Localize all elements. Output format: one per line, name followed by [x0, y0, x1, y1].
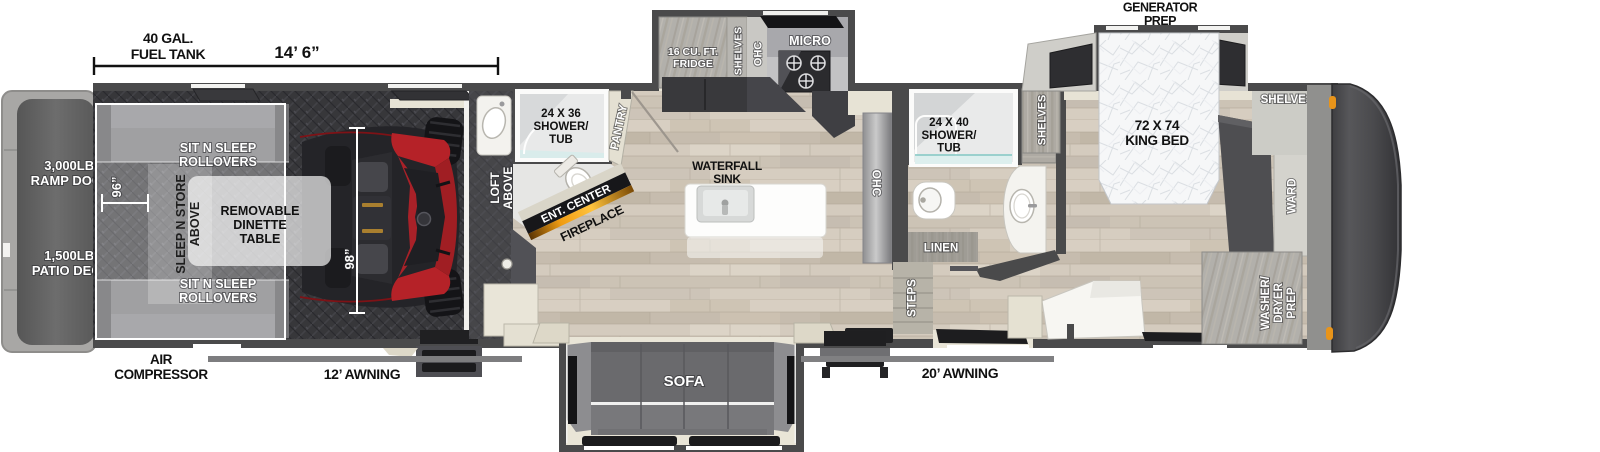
svg-text:DRYER: DRYER	[1273, 282, 1285, 323]
svg-text:40 GAL.: 40 GAL.	[143, 30, 193, 46]
svg-text:ROLLOVERS: ROLLOVERS	[179, 291, 257, 305]
svg-text:96”: 96”	[109, 177, 124, 198]
svg-text:TABLE: TABLE	[240, 232, 281, 246]
svg-text:FUEL TANK: FUEL TANK	[131, 46, 206, 62]
svg-text:1,500LB.: 1,500LB.	[44, 248, 97, 263]
svg-text:DINETTE: DINETTE	[233, 218, 286, 232]
svg-text:24 X 40: 24 X 40	[929, 117, 969, 129]
svg-text:WASHER/: WASHER/	[1260, 275, 1272, 329]
svg-text:16 CU. FT.: 16 CU. FT.	[668, 46, 718, 58]
svg-text:FRIDGE: FRIDGE	[673, 58, 713, 70]
svg-text:ABOVE: ABOVE	[188, 202, 202, 246]
svg-text:SIT N SLEEP: SIT N SLEEP	[180, 141, 256, 155]
svg-text:AIR: AIR	[150, 352, 173, 367]
svg-text:SINK: SINK	[713, 172, 741, 186]
svg-text:SHOWER/: SHOWER/	[922, 130, 978, 142]
svg-text:72 X 74: 72 X 74	[1135, 118, 1180, 133]
svg-text:SHELVES: SHELVES	[733, 27, 745, 75]
svg-text:LOFT: LOFT	[488, 172, 502, 204]
svg-text:SHELVES: SHELVES	[1261, 94, 1314, 106]
svg-text:SOFA: SOFA	[664, 373, 705, 390]
svg-text:REMOVABLE: REMOVABLE	[221, 204, 300, 218]
svg-text:OHC: OHC	[753, 42, 765, 67]
svg-text:SHOWER/: SHOWER/	[534, 121, 590, 133]
svg-text:98”: 98”	[342, 249, 357, 270]
svg-text:WARD: WARD	[1287, 178, 1299, 213]
svg-text:PREP: PREP	[1286, 287, 1298, 319]
svg-text:LINEN: LINEN	[924, 243, 959, 255]
svg-text:KING BED: KING BED	[1125, 133, 1189, 148]
svg-text:ROLLOVERS: ROLLOVERS	[179, 155, 257, 169]
svg-text:MICRO: MICRO	[789, 34, 831, 48]
svg-text:SHELVES: SHELVES	[1037, 95, 1049, 146]
svg-text:GENERATOR: GENERATOR	[1123, 1, 1198, 15]
svg-text:TUB: TUB	[549, 134, 573, 146]
svg-text:WATERFALL: WATERFALL	[692, 159, 762, 173]
svg-text:24 X 36: 24 X 36	[541, 108, 581, 120]
svg-text:12’ AWNING: 12’ AWNING	[324, 366, 401, 382]
svg-text:OHC: OHC	[870, 170, 884, 197]
svg-text:SLEEP N STORE: SLEEP N STORE	[174, 174, 188, 274]
svg-text:ABOVE: ABOVE	[501, 167, 515, 210]
svg-text:STEPS: STEPS	[907, 279, 919, 317]
svg-text:SIT N SLEEP: SIT N SLEEP	[180, 277, 256, 291]
svg-text:20’ AWNING: 20’ AWNING	[922, 365, 999, 381]
svg-text:PREP: PREP	[1144, 14, 1176, 28]
svg-text:TUB: TUB	[937, 143, 961, 155]
svg-text:COMPRESSOR: COMPRESSOR	[114, 367, 208, 382]
svg-text:14’ 6”: 14’ 6”	[274, 43, 319, 62]
svg-text:3,000LB.: 3,000LB.	[44, 158, 97, 173]
